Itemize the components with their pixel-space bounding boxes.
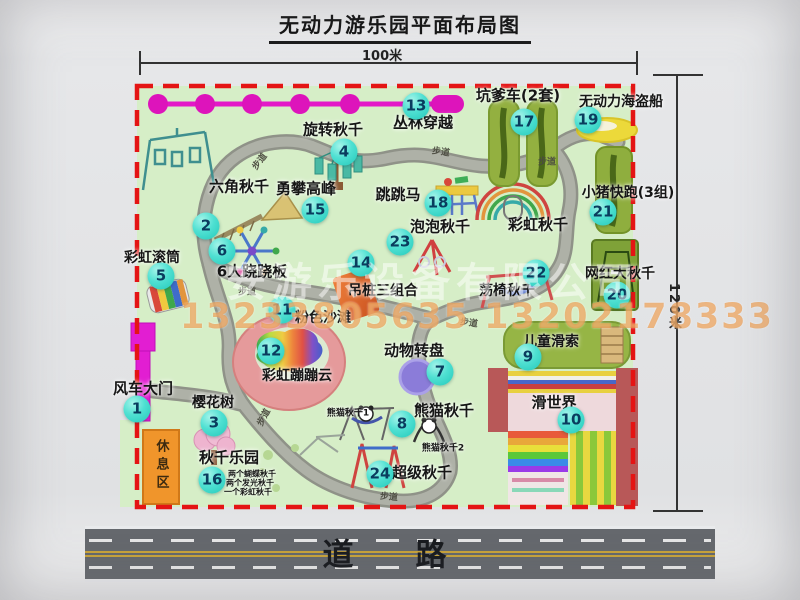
rest-area-box <box>143 430 179 504</box>
page-title: 无动力游乐园平面布局图 <box>269 9 531 44</box>
slide-world-icon <box>488 368 638 506</box>
road: 道路 <box>85 526 715 582</box>
piggy-run-track-icon <box>596 147 632 233</box>
height-dimension-label: 120米 <box>664 283 683 331</box>
animal-carousel-icon <box>400 360 434 394</box>
pirate-ship-icon <box>577 118 637 142</box>
road-label: 道路 <box>292 530 509 575</box>
kids-zipline-icon <box>504 322 630 368</box>
width-dimension-label: 100米 <box>362 45 402 64</box>
